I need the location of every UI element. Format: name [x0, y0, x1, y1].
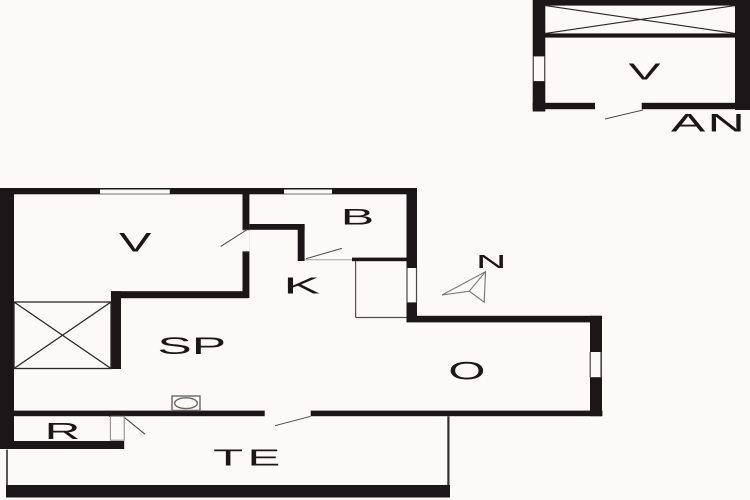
svg-text:N: N	[476, 251, 506, 272]
svg-text:V: V	[629, 59, 661, 85]
svg-text:TE: TE	[213, 445, 284, 471]
svg-text:SP: SP	[157, 332, 226, 359]
svg-text:R: R	[45, 418, 81, 444]
svg-text:AN: AN	[671, 109, 747, 137]
svg-text:K: K	[283, 272, 320, 298]
svg-text:O: O	[448, 358, 485, 386]
svg-text:V: V	[119, 227, 152, 257]
svg-text:B: B	[341, 205, 374, 230]
